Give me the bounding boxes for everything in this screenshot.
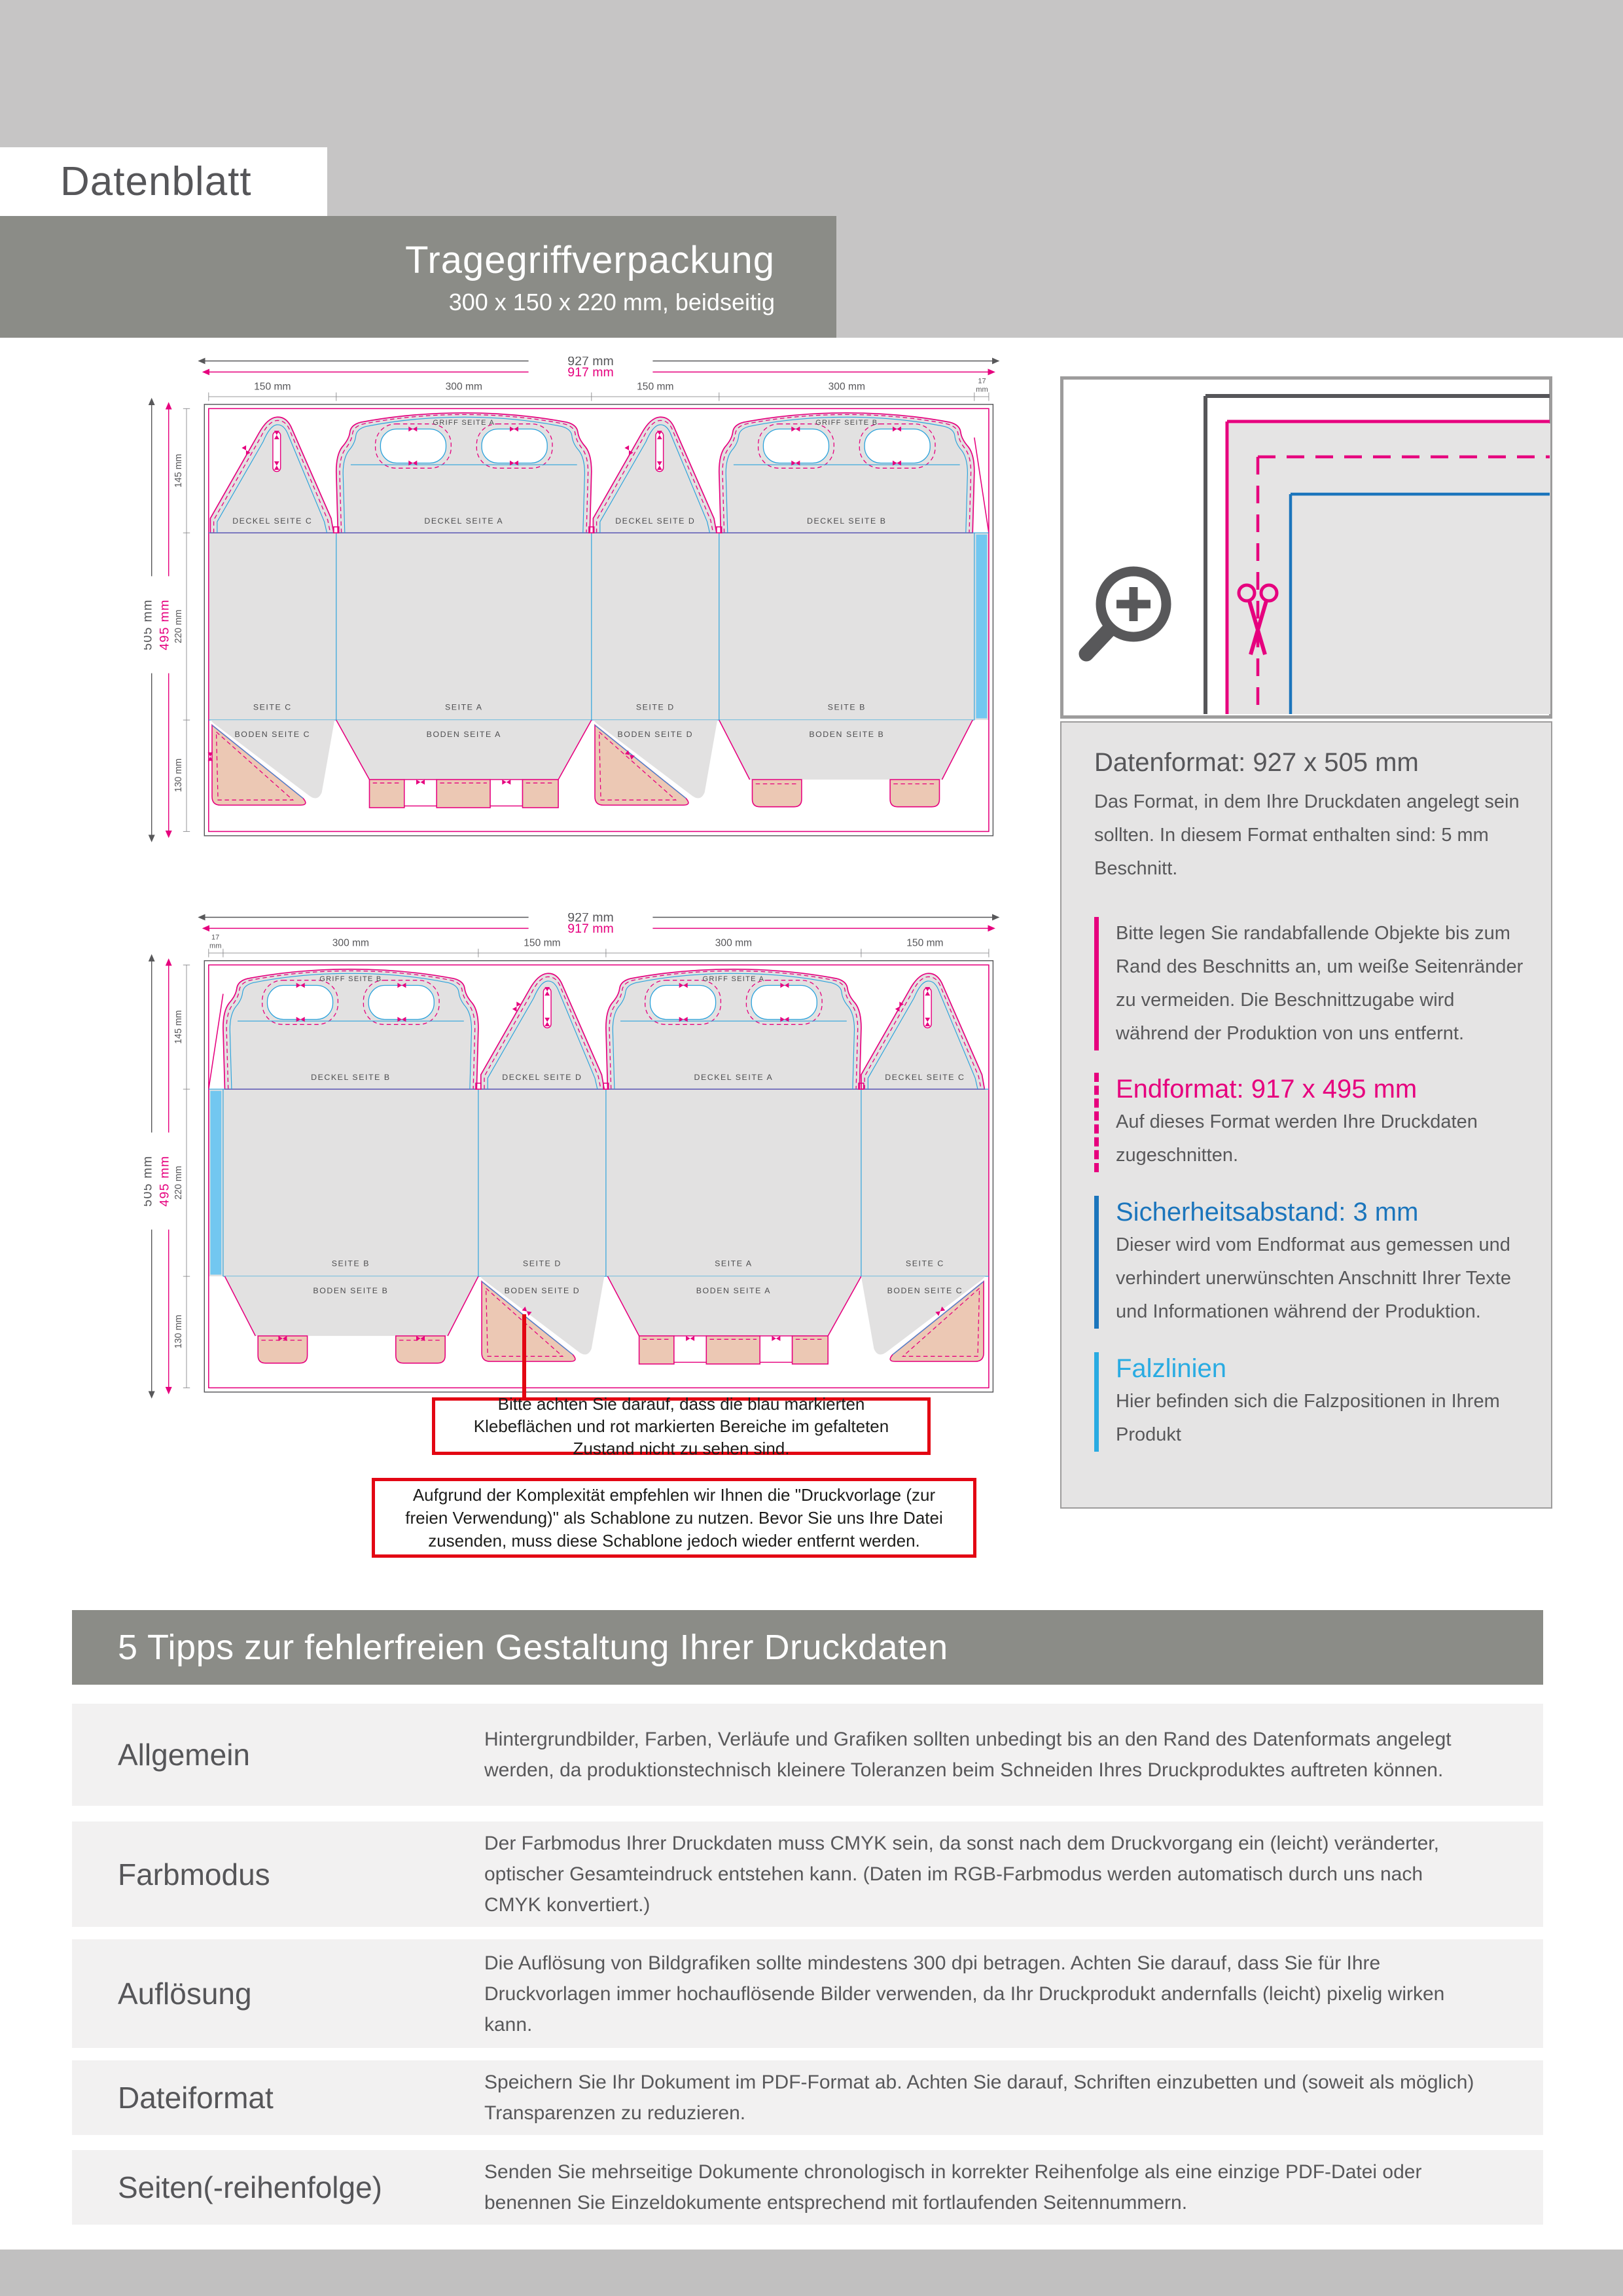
sicherheitsabstand-title: Sicherheitsabstand: 3 mm bbox=[1116, 1196, 1525, 1229]
page-bottom-strip bbox=[0, 2250, 1623, 2296]
svg-text:300 mm: 300 mm bbox=[446, 382, 482, 393]
endformat-text: Auf dieses Format werden Ihre Druckdaten… bbox=[1116, 1105, 1525, 1172]
note-connector-line bbox=[522, 1314, 526, 1399]
tip-row-dateiformat: Dateiformat Speichern Sie Ihr Dokument i… bbox=[72, 2060, 1543, 2135]
svg-text:SEITE B: SEITE B bbox=[828, 703, 866, 712]
svg-text:DECKEL SEITE C: DECKEL SEITE C bbox=[885, 1073, 965, 1082]
dimension-width-inner: 917 mm bbox=[209, 922, 989, 936]
tip-label: Dateiformat bbox=[72, 2080, 484, 2115]
tip-label: Auflösung bbox=[72, 1976, 484, 2011]
tip-text: Die Auflösung von Bildgrafiken sollte mi… bbox=[484, 1948, 1492, 2040]
format-corner-detail bbox=[1205, 396, 1550, 714]
svg-text:GRIFF SEITE A: GRIFF SEITE A bbox=[703, 975, 765, 983]
falzlinien-text: Hier befinden sich die Falzpositionen in… bbox=[1116, 1385, 1525, 1452]
svg-text:220 mm: 220 mm bbox=[173, 1166, 184, 1200]
dimension-columns: 150 mm 300 mm 150 mm 300 mm 17 mm bbox=[209, 377, 989, 401]
svg-text:DECKEL SEITE D: DECKEL SEITE D bbox=[502, 1073, 582, 1082]
svg-text:SEITE D: SEITE D bbox=[523, 1259, 562, 1268]
datenformat-text: Das Format, in dem Ihre Druckdaten angel… bbox=[1094, 785, 1525, 886]
svg-text:17: 17 bbox=[978, 377, 986, 385]
tips-header: 5 Tipps zur fehlerfreien Gestaltung Ihre… bbox=[72, 1627, 948, 1668]
svg-text:BODEN SEITE D: BODEN SEITE D bbox=[505, 1286, 580, 1295]
svg-text:SEITE A: SEITE A bbox=[445, 703, 483, 712]
svg-text:150 mm: 150 mm bbox=[906, 938, 943, 949]
svg-text:150 mm: 150 mm bbox=[637, 382, 673, 393]
tip-label: Seiten(-reihenfolge) bbox=[72, 2170, 484, 2205]
svg-text:BODEN SEITE B: BODEN SEITE B bbox=[809, 730, 884, 739]
svg-text:17: 17 bbox=[211, 933, 219, 941]
svg-text:145 mm: 145 mm bbox=[173, 1010, 184, 1044]
falzlinien-section: Falzlinien Hier befinden sich die Falzpo… bbox=[1094, 1352, 1525, 1452]
svg-text:150 mm: 150 mm bbox=[524, 938, 560, 949]
glue-stripe bbox=[210, 1091, 221, 1275]
deckel-panels bbox=[210, 413, 989, 533]
svg-text:145 mm: 145 mm bbox=[173, 454, 184, 488]
tip-label: Farbmodus bbox=[72, 1857, 484, 1892]
dieline-drawing-front: 927 mm 917 mm 150 mm 300 mm 150 mm 300 m… bbox=[144, 357, 1012, 850]
tip-text: Speichern Sie Ihr Dokument im PDF-Format… bbox=[484, 2067, 1492, 2128]
doc-label: Datenblatt bbox=[0, 158, 252, 205]
svg-text:mm: mm bbox=[209, 942, 221, 950]
svg-text:GRIFF SEITE A: GRIFF SEITE A bbox=[433, 419, 495, 427]
sicherheitsabstand-bar bbox=[1094, 1196, 1099, 1329]
svg-text:300 mm: 300 mm bbox=[715, 938, 752, 949]
title-band: Tragegriffverpackung 300 x 150 x 220 mm,… bbox=[0, 216, 836, 338]
svg-text:mm: mm bbox=[976, 386, 988, 393]
sicherheitsabstand-section: Sicherheitsabstand: 3 mm Dieser wird vom… bbox=[1094, 1196, 1525, 1329]
svg-text:BODEN SEITE A: BODEN SEITE A bbox=[696, 1286, 771, 1295]
dimension-width-inner: 917 mm bbox=[209, 365, 989, 380]
tip-row-aufloesung: Auflösung Die Auflösung von Bildgrafiken… bbox=[72, 1939, 1543, 2048]
svg-text:SEITE A: SEITE A bbox=[715, 1259, 753, 1268]
svg-text:220 mm: 220 mm bbox=[173, 609, 184, 643]
endformat-section: Endformat: 917 x 495 mm Auf dieses Forma… bbox=[1094, 1073, 1525, 1172]
svg-text:BODEN SEITE A: BODEN SEITE A bbox=[427, 730, 501, 739]
tip-row-seitenreihenfolge: Seiten(-reihenfolge) Senden Sie mehrseit… bbox=[72, 2150, 1543, 2225]
svg-text:300 mm: 300 mm bbox=[332, 938, 369, 949]
svg-text:SEITE D: SEITE D bbox=[636, 703, 675, 712]
svg-text:BODEN SEITE C: BODEN SEITE C bbox=[887, 1286, 963, 1295]
svg-text:DECKEL SEITE D: DECKEL SEITE D bbox=[615, 516, 695, 526]
dimension-height-inner: 495 mm bbox=[158, 965, 172, 1388]
seite-row bbox=[209, 533, 989, 720]
svg-text:BODEN SEITE B: BODEN SEITE B bbox=[313, 1286, 388, 1295]
svg-text:495 mm: 495 mm bbox=[158, 599, 172, 650]
dimension-rows: 145 mm 220 mm 130 mm bbox=[173, 965, 190, 1388]
tip-text: Senden Sie mehrseitige Dokumente chronol… bbox=[484, 2157, 1492, 2218]
dim-917: 917 mm bbox=[567, 365, 613, 380]
template-warning-note: Aufgrund der Komplexität empfehlen wir I… bbox=[372, 1478, 976, 1558]
svg-text:GRIFF SEITE B: GRIFF SEITE B bbox=[319, 975, 382, 983]
tip-label: Allgemein bbox=[72, 1737, 484, 1772]
doc-label-box: Datenblatt bbox=[0, 147, 327, 216]
svg-text:DECKEL SEITE A: DECKEL SEITE A bbox=[424, 516, 503, 526]
dimension-columns: 17 mm 300 mm 150 mm 300 mm 150 mm bbox=[209, 933, 989, 957]
svg-text:130 mm: 130 mm bbox=[173, 759, 184, 793]
svg-text:GRIFF SEITE B: GRIFF SEITE B bbox=[815, 419, 878, 427]
tips-header-band: 5 Tipps zur fehlerfreien Gestaltung Ihre… bbox=[72, 1610, 1543, 1685]
glue-warning-note: Bitte achten Sie darauf, dass die blau m… bbox=[432, 1397, 931, 1455]
svg-text:495 mm: 495 mm bbox=[158, 1155, 172, 1206]
dimension-rows: 145 mm 220 mm 130 mm bbox=[173, 408, 190, 831]
endformat-title: Endformat: 917 x 495 mm bbox=[1116, 1073, 1525, 1105]
svg-text:150 mm: 150 mm bbox=[254, 382, 291, 393]
svg-text:130 mm: 130 mm bbox=[173, 1315, 184, 1349]
svg-text:BODEN SEITE D: BODEN SEITE D bbox=[617, 730, 693, 739]
glue-stripe bbox=[976, 535, 987, 719]
template-warning-text: Aufgrund der Komplexität empfehlen wir I… bbox=[401, 1484, 947, 1552]
svg-text:DECKEL SEITE B: DECKEL SEITE B bbox=[311, 1073, 391, 1082]
svg-text:DECKEL SEITE A: DECKEL SEITE A bbox=[694, 1073, 773, 1082]
datenformat-title: Datenformat: 927 x 505 mm bbox=[1094, 746, 1525, 779]
svg-text:SEITE B: SEITE B bbox=[332, 1259, 370, 1268]
tip-text: Der Farbmodus Ihrer Druckdaten muss CMYK… bbox=[484, 1828, 1492, 1920]
tip-text: Hintergrundbilder, Farben, Verläufe und … bbox=[484, 1724, 1492, 1785]
bleed-bar bbox=[1094, 917, 1099, 1050]
dimension-height-outer: 505 mm bbox=[144, 961, 155, 1392]
svg-text:BODEN SEITE C: BODEN SEITE C bbox=[234, 730, 310, 739]
tip-row-allgemein: Allgemein Hintergrundbilder, Farben, Ver… bbox=[72, 1704, 1543, 1806]
falzlinien-bar bbox=[1094, 1352, 1099, 1452]
page-title: Tragegriffverpackung bbox=[405, 238, 775, 282]
svg-text:SEITE C: SEITE C bbox=[906, 1259, 944, 1268]
svg-text:917 mm: 917 mm bbox=[567, 922, 613, 936]
svg-text:DECKEL SEITE B: DECKEL SEITE B bbox=[807, 516, 887, 526]
svg-text:DECKEL SEITE C: DECKEL SEITE C bbox=[232, 516, 312, 526]
svg-text:505 mm: 505 mm bbox=[144, 1155, 155, 1206]
endformat-bar bbox=[1094, 1073, 1099, 1172]
dimension-height-outer: 505 mm bbox=[144, 404, 155, 836]
svg-text:505 mm: 505 mm bbox=[144, 599, 155, 650]
bleed-section: Bitte legen Sie randabfallende Objekte b… bbox=[1094, 917, 1525, 1050]
sicherheitsabstand-text: Dieser wird vom Endformat aus gemessen u… bbox=[1116, 1229, 1525, 1329]
dimension-height-inner: 495 mm bbox=[158, 408, 172, 831]
seite-row bbox=[209, 1089, 989, 1276]
glue-warning-text: Bitte achten Sie darauf, dass die blau m… bbox=[450, 1393, 913, 1460]
format-detail-panel bbox=[1060, 376, 1552, 719]
format-info-box: Datenformat: 927 x 505 mm Das Format, in… bbox=[1060, 721, 1552, 1509]
falzlinien-title: Falzlinien bbox=[1116, 1352, 1525, 1385]
dieline-drawing-back: 927 mm 917 mm 17 mm 300 mm 150 mm 300 mm… bbox=[144, 913, 1012, 1407]
svg-text:300 mm: 300 mm bbox=[829, 382, 865, 393]
tip-row-farbmodus: Farbmodus Der Farbmodus Ihrer Druckdaten… bbox=[72, 1821, 1543, 1927]
bleed-text: Bitte legen Sie randabfallende Objekte b… bbox=[1116, 917, 1525, 1050]
page-subtitle: 300 x 150 x 220 mm, beidseitig bbox=[449, 289, 775, 316]
svg-text:SEITE C: SEITE C bbox=[253, 703, 292, 712]
